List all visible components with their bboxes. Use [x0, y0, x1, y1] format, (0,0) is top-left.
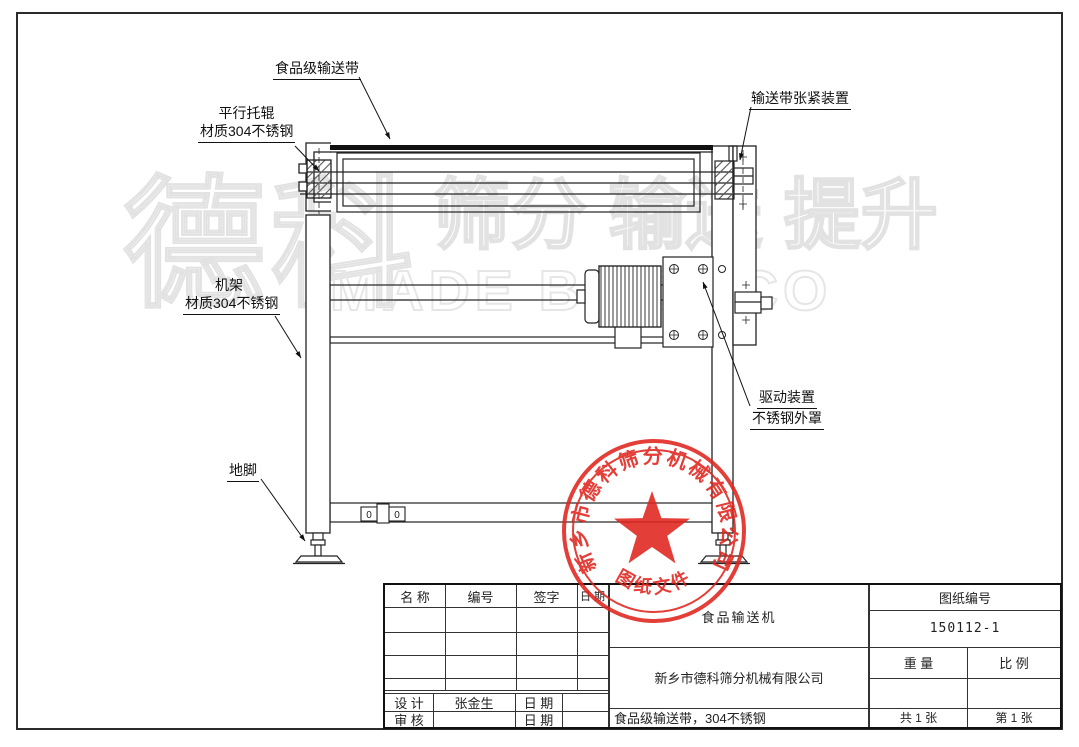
callout-drive-line1: 驱动装置: [757, 388, 817, 409]
drawing-sheet: 德科 筛分 输送 提升 MADE BY DECO 0 0: [0, 0, 1079, 747]
tb-weight-label: 重 量: [870, 647, 967, 678]
belt-and-frame: [300, 145, 753, 212]
callout-drive: 驱动装置 不锈钢外罩: [748, 388, 826, 430]
tb-drawing-no: 150112-1: [870, 610, 1060, 647]
tb-header-name: 名 称: [385, 585, 445, 607]
callout-roller: 平行托辊 材质304不锈钢: [198, 104, 295, 143]
tb-description: 食品级输送带，304不锈钢: [614, 708, 868, 727]
callout-roller-line1: 平行托辊: [198, 104, 295, 122]
callout-tension-text: 输送带张紧装置: [749, 89, 851, 110]
stamp-bottom-text: 图纸文件: [613, 565, 696, 598]
rail-hole-mark-right: 0: [394, 510, 400, 521]
callout-belt: 食品级输送带: [273, 59, 361, 80]
tb-design-date-label: 日 期: [515, 693, 562, 711]
callout-drive-line2: 不锈钢外罩: [750, 409, 824, 430]
callout-tension: 输送带张紧装置: [749, 89, 851, 110]
tb-audit-label: 审 核: [385, 711, 433, 727]
tail-tension-bracket: [299, 143, 331, 214]
callout-roller-line2: 材质304不锈钢: [198, 122, 295, 143]
callout-frame-line1: 机架: [183, 276, 275, 294]
tb-sheet-no: 第 1 张: [968, 708, 1060, 727]
svg-text:图纸文件: 图纸文件: [613, 565, 696, 598]
tb-header-number: 编号: [445, 585, 516, 607]
company-stamp: 新乡市德科筛分机械有限公司 图纸文件: [556, 433, 752, 633]
tb-scale-label: 比 例: [968, 647, 1060, 678]
callout-foot: 地脚: [227, 461, 259, 482]
rail-hole-mark-left: 0: [366, 510, 372, 521]
callout-foot-text: 地脚: [227, 461, 259, 482]
tb-audit-date-label: 日 期: [515, 711, 562, 727]
stamp-star: [614, 491, 690, 563]
tb-design-name: 张金生: [433, 693, 515, 711]
tb-company: 新乡市德科筛分机械有限公司: [610, 647, 868, 708]
tb-drawing-no-label: 图纸编号: [870, 585, 1060, 610]
callout-frame: 机架 材质304不锈钢: [183, 276, 275, 315]
tb-design-label: 设 计: [385, 693, 433, 711]
callout-frame-line2: 材质304不锈钢: [183, 294, 280, 315]
tb-sheet-total: 共 1 张: [870, 708, 967, 727]
callout-belt-text: 食品级输送带: [273, 59, 361, 80]
